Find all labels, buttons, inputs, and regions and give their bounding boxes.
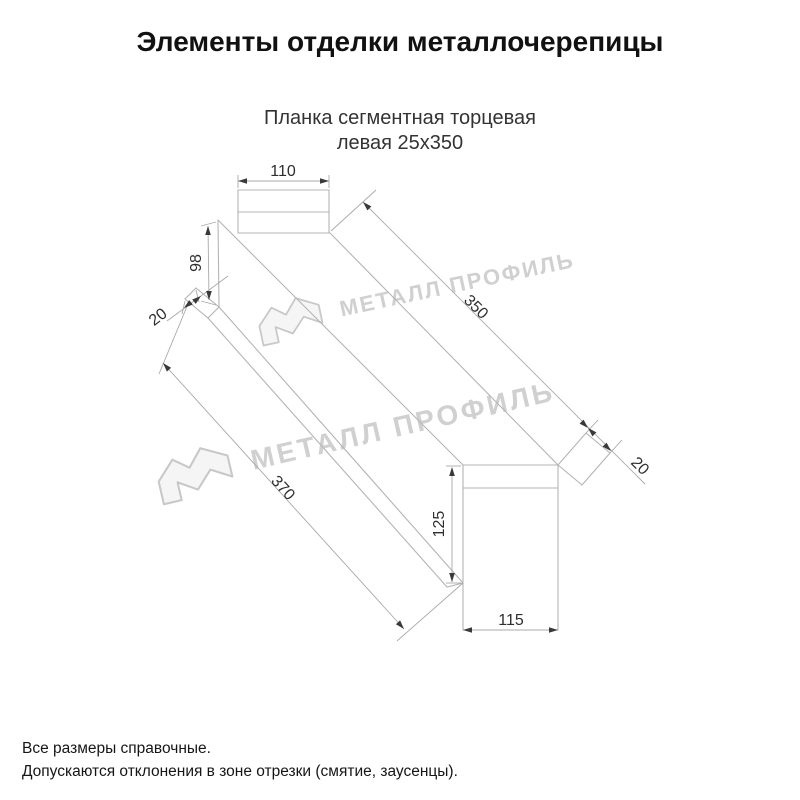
dim-top-edge-length-label: 350 <box>460 292 491 323</box>
catalog-page: Элементы отделки металлочерепицы Планка … <box>0 0 800 800</box>
footer-note-2: Допускаются отклонения в зоне отрезки (с… <box>22 760 458 783</box>
dim-near-end-height-label: 98 <box>188 254 205 272</box>
dim-far-end-height-label: 125 <box>431 511 448 538</box>
dim-far-end-width-label: 115 <box>498 612 524 629</box>
dimension-lines <box>159 175 645 641</box>
dim-far-hem-label: 20 <box>627 454 652 479</box>
dim-near-hem-label: 20 <box>146 305 171 329</box>
trim-outline <box>185 190 610 630</box>
footer-note-1: Все размеры справочные. <box>22 737 458 760</box>
dim-top-flange-width-label: 110 <box>270 163 296 180</box>
dimension-arrows <box>163 178 611 633</box>
footer-notes: Все размеры справочные. Допускаются откл… <box>22 737 458 783</box>
trim-technical-drawing: 110 98 20 350 20 370 125 115 <box>0 0 800 800</box>
dimension-labels: 110 98 20 350 20 370 125 115 <box>146 163 652 629</box>
dim-bottom-edge-length-label: 370 <box>267 473 298 504</box>
